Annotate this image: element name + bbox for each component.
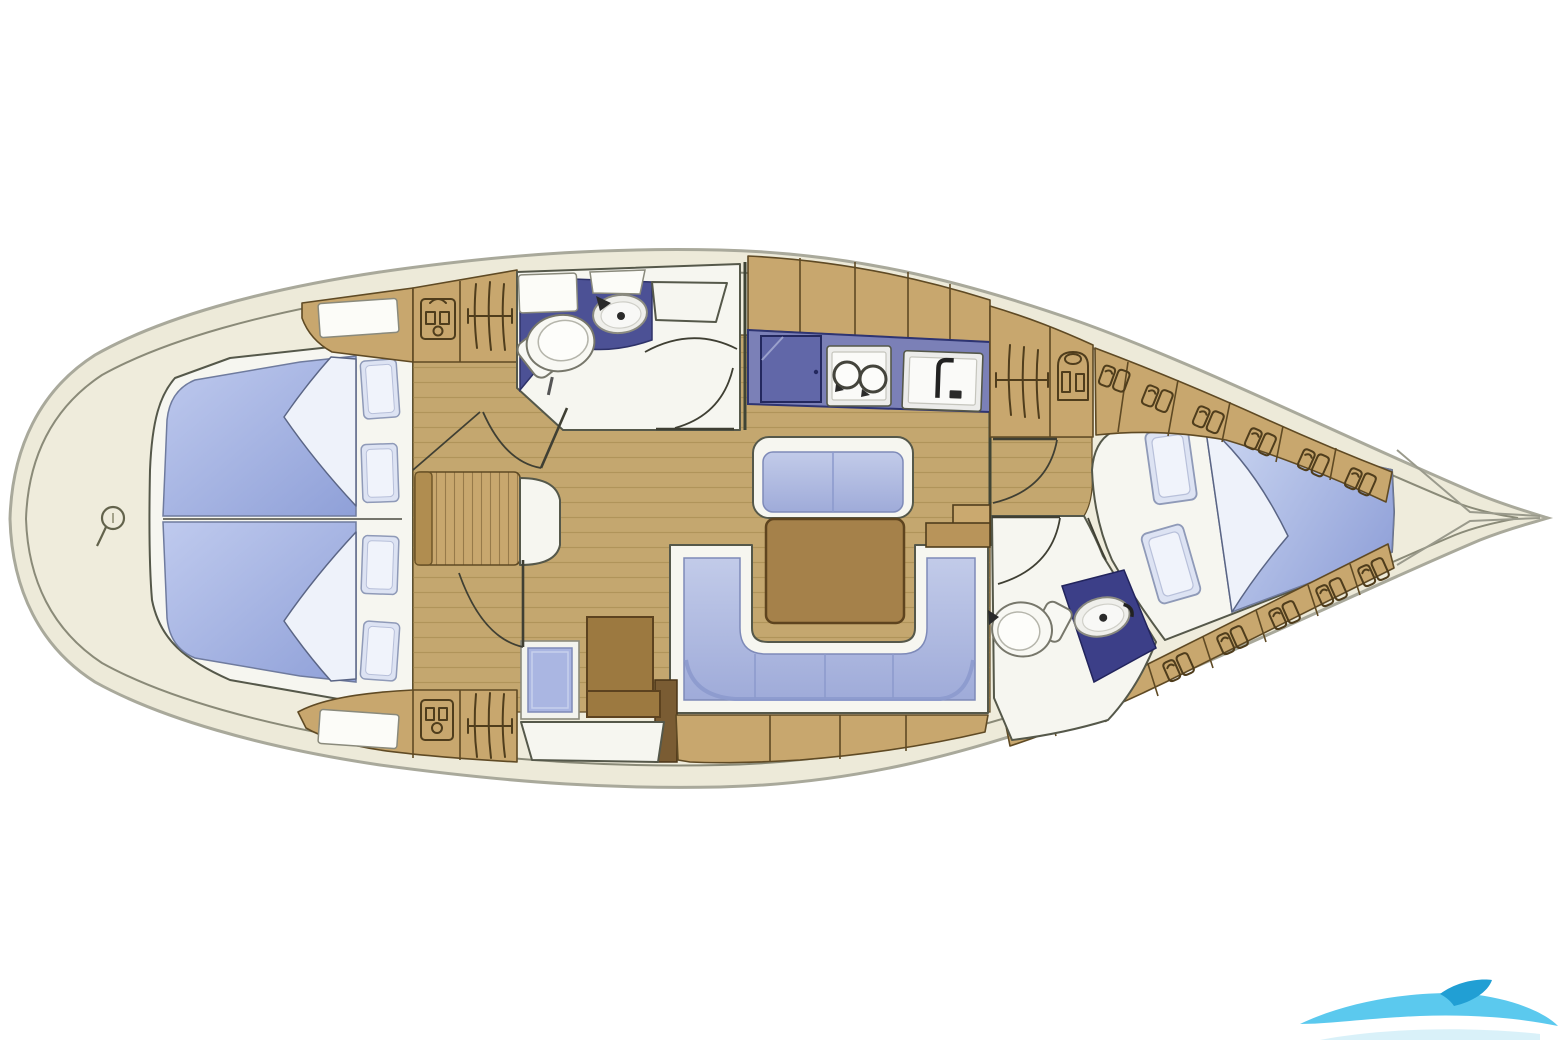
pillow <box>1145 427 1198 505</box>
pillow <box>360 359 400 419</box>
chart-table <box>587 617 653 693</box>
drop-leaf-table <box>415 472 560 565</box>
pillow <box>361 443 399 502</box>
salon-table <box>766 519 904 623</box>
head-shelf <box>590 270 645 294</box>
yacht-floorplan-image <box>0 0 1560 1040</box>
salon-bench <box>753 437 913 518</box>
head-bench <box>652 282 727 322</box>
stool <box>520 478 560 565</box>
forward-head <box>510 262 745 430</box>
step <box>926 523 990 547</box>
floorplan-svg <box>0 0 1560 1040</box>
watermark-swoosh <box>1300 980 1558 1040</box>
chart-table-extension <box>587 691 660 717</box>
head-shelf <box>518 273 577 313</box>
pillow <box>360 621 400 681</box>
nav-floor-locker <box>521 722 664 762</box>
nav-seat <box>528 648 572 712</box>
locker-door <box>318 709 399 748</box>
pillow <box>361 535 399 594</box>
locker-door <box>318 298 399 337</box>
galley-sink <box>902 351 983 412</box>
fridge-icon <box>761 336 821 402</box>
two-burner-stove-icon <box>827 346 891 406</box>
left-cabin-double-berth <box>149 338 413 712</box>
